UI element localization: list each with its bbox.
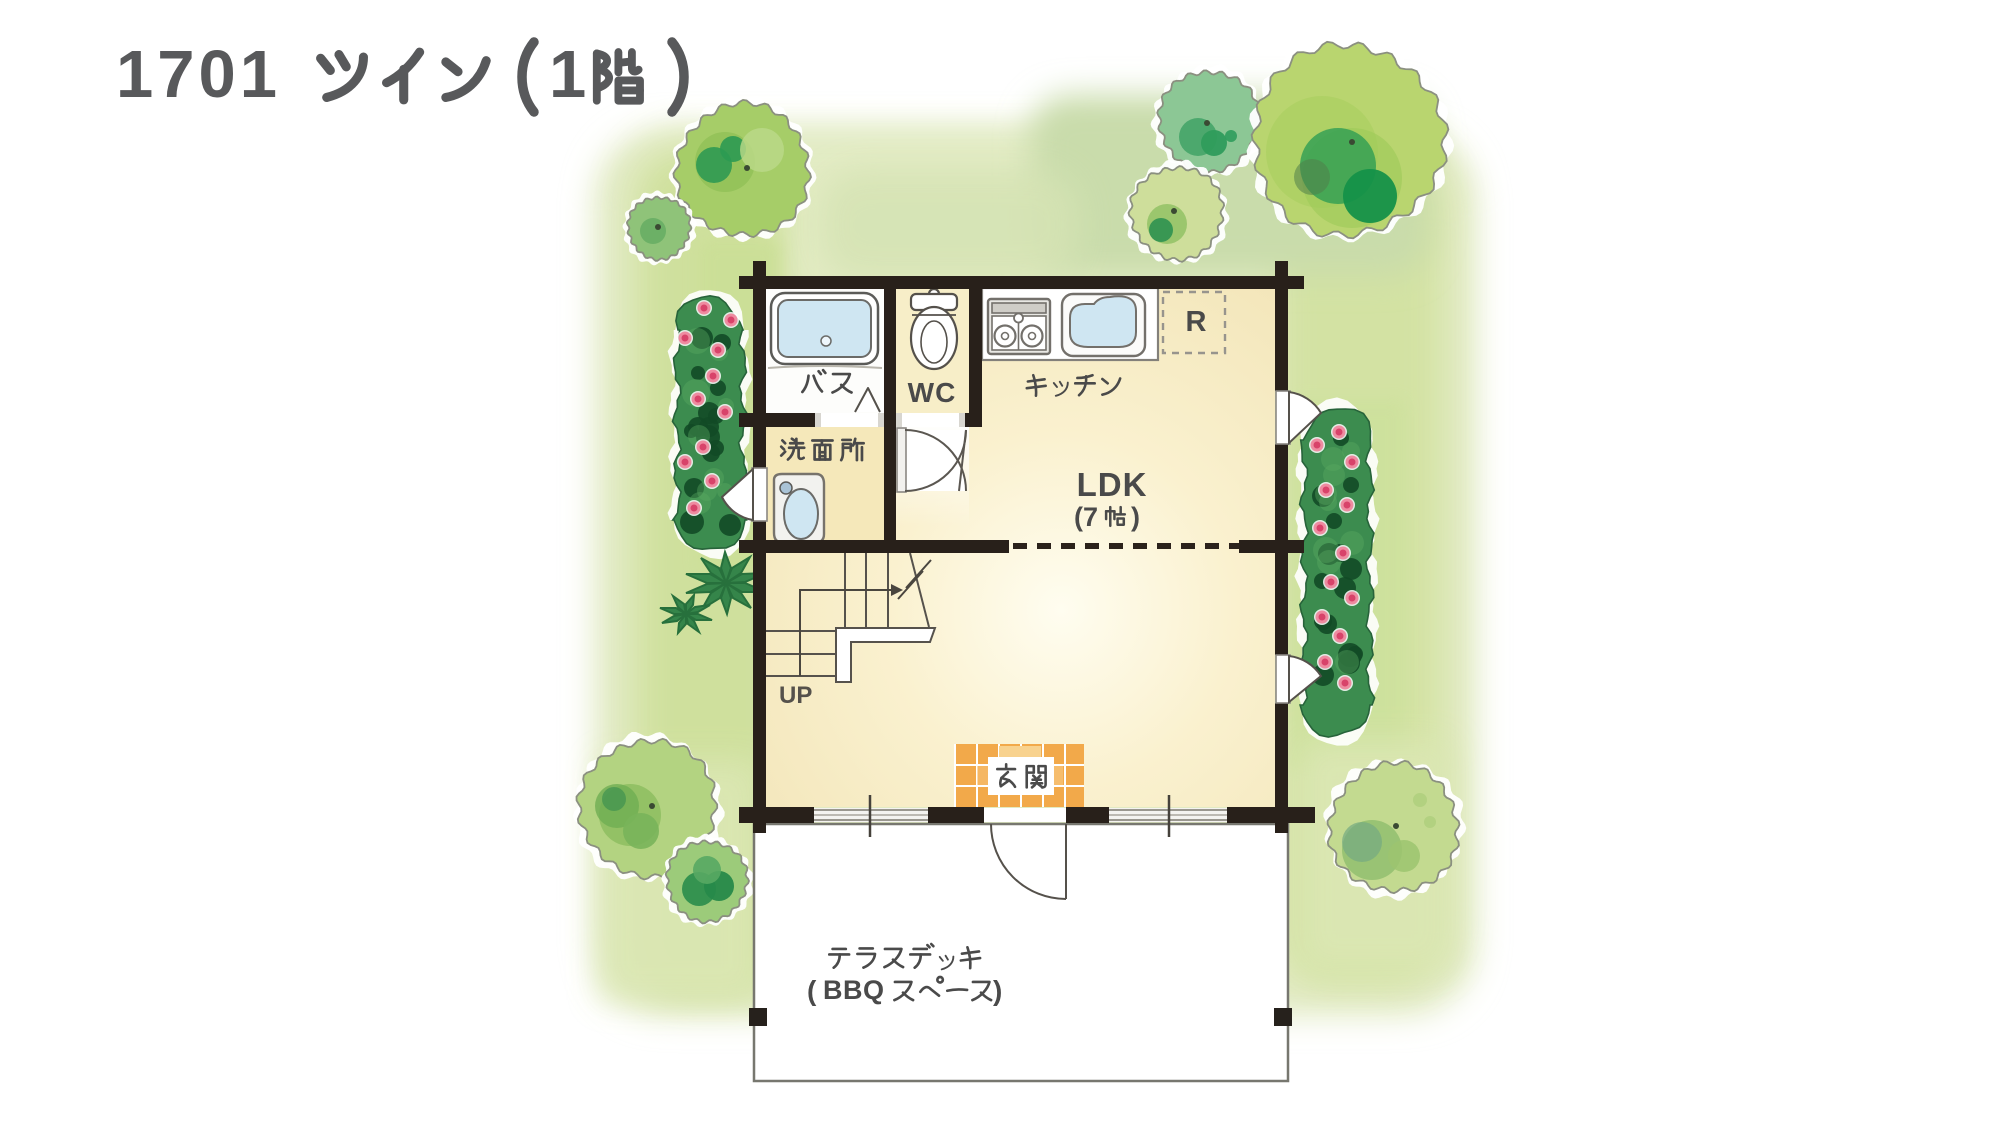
svg-text:BBQ: BBQ (823, 975, 885, 1005)
svg-text:(7: (7 (1074, 502, 1098, 532)
svg-text:WC: WC (908, 377, 957, 408)
svg-text:): ) (993, 975, 1002, 1006)
svg-text:(: ( (807, 975, 817, 1006)
svg-text:): ) (1131, 502, 1140, 532)
svg-text:R: R (1186, 306, 1207, 338)
svg-text:1: 1 (549, 37, 586, 112)
svg-text:UP: UP (779, 682, 812, 709)
svg-text:1701: 1701 (116, 37, 281, 112)
svg-text:LDK: LDK (1077, 466, 1148, 503)
